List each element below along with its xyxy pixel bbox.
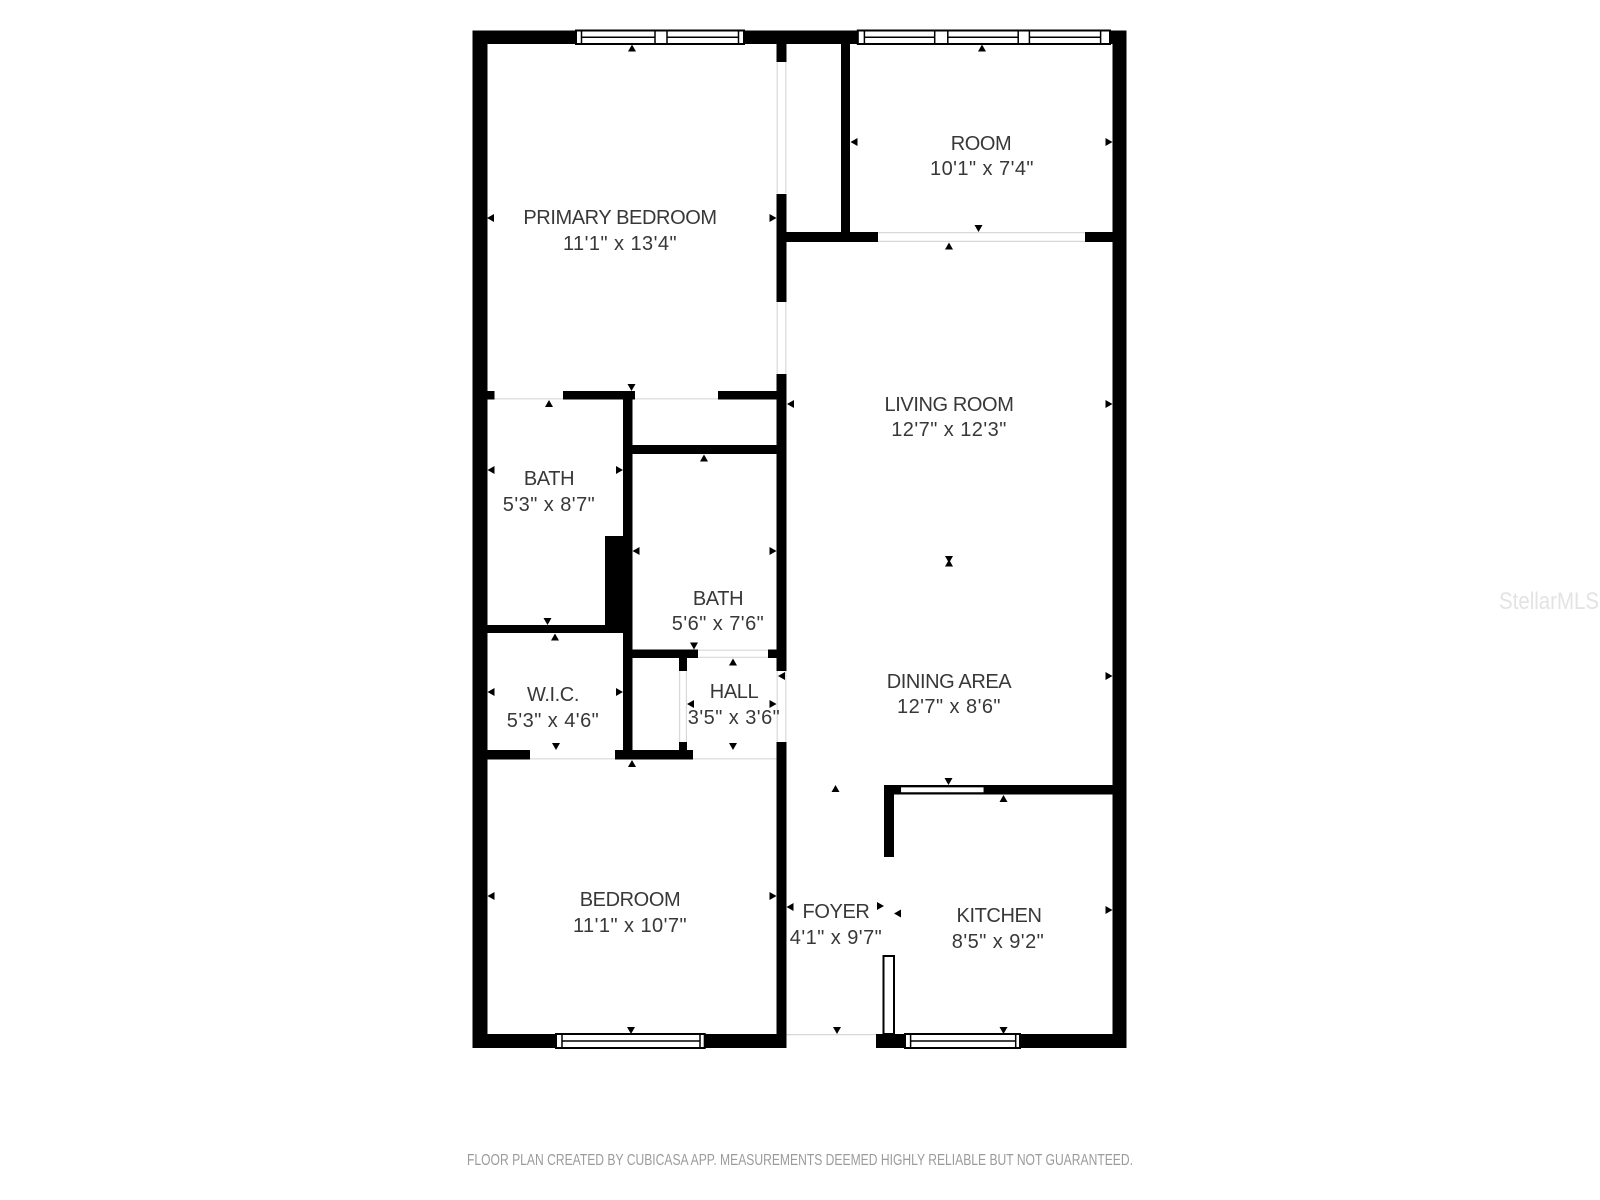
svg-text:BATH: BATH	[693, 588, 743, 610]
svg-text:11'1" x 10'7": 11'1" x 10'7"	[573, 915, 687, 937]
svg-text:W.I.C.: W.I.C.	[527, 684, 579, 706]
svg-text:LIVING ROOM: LIVING ROOM	[885, 394, 1014, 416]
svg-text:12'7" x 12'3": 12'7" x 12'3"	[891, 419, 1007, 441]
svg-text:5'3" x 4'6": 5'3" x 4'6"	[507, 710, 599, 732]
svg-text:FLOOR PLAN CREATED BY CUBICASA: FLOOR PLAN CREATED BY CUBICASA APP. MEAS…	[467, 1152, 1133, 1169]
svg-text:11'1" x 13'4": 11'1" x 13'4"	[563, 233, 677, 255]
svg-text:5'3" x 8'7": 5'3" x 8'7"	[503, 494, 595, 516]
svg-text:BATH: BATH	[524, 468, 574, 490]
svg-text:PRIMARY BEDROOM: PRIMARY BEDROOM	[523, 207, 716, 229]
svg-text:3'5" x 3'6": 3'5" x 3'6"	[688, 707, 780, 729]
svg-text:FOYER: FOYER	[803, 901, 870, 923]
svg-text:4'1" x 9'7": 4'1" x 9'7"	[790, 927, 882, 949]
svg-text:10'1" x 7'4": 10'1" x 7'4"	[930, 158, 1034, 180]
svg-text:BEDROOM: BEDROOM	[580, 889, 681, 911]
svg-text:ROOM: ROOM	[951, 133, 1012, 155]
svg-text:12'7" x 8'6": 12'7" x 8'6"	[897, 696, 1001, 718]
svg-text:5'6" x 7'6": 5'6" x 7'6"	[672, 613, 764, 635]
svg-text:DINING AREA: DINING AREA	[887, 671, 1013, 693]
svg-text:HALL: HALL	[710, 681, 759, 703]
svg-text:StellarMLS: StellarMLS	[1499, 588, 1599, 615]
svg-text:KITCHEN: KITCHEN	[957, 905, 1042, 927]
svg-text:8'5" x 9'2": 8'5" x 9'2"	[952, 931, 1044, 953]
